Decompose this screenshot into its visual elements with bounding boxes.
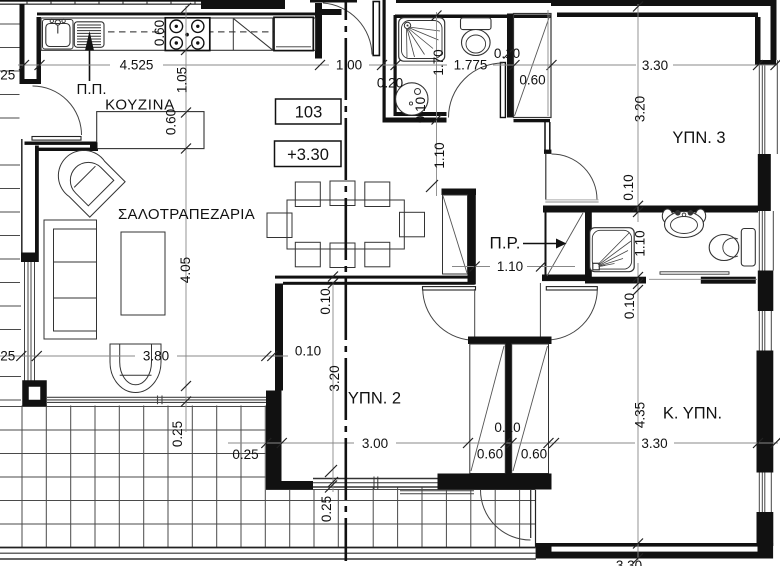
svg-text:0.60: 0.60 (521, 447, 547, 462)
svg-text:1.10: 1.10 (497, 259, 523, 274)
svg-text:1.05: 1.05 (175, 67, 190, 93)
svg-text:103: 103 (295, 104, 323, 122)
svg-text:0.60: 0.60 (152, 20, 167, 46)
svg-text:Π.Π.: Π.Π. (77, 81, 107, 98)
svg-text:+3.30: +3.30 (287, 146, 329, 164)
svg-text:1.10: 1.10 (633, 230, 648, 256)
svg-text:0.60: 0.60 (519, 73, 545, 88)
svg-text:3.00: 3.00 (362, 436, 388, 451)
svg-text:4.35: 4.35 (633, 402, 648, 428)
svg-text:4.05: 4.05 (178, 257, 193, 283)
svg-text:0.25: 0.25 (0, 349, 15, 364)
svg-text:0.25: 0.25 (170, 421, 185, 447)
svg-text:0.10: 0.10 (413, 97, 428, 123)
svg-text:ΥΠΝ. 3: ΥΠΝ. 3 (672, 129, 725, 147)
svg-text:4.525: 4.525 (120, 58, 154, 73)
svg-text:1.10: 1.10 (432, 142, 447, 168)
svg-text:0.10: 0.10 (622, 293, 637, 319)
svg-text:0.25: 0.25 (0, 68, 15, 83)
svg-text:0.10: 0.10 (494, 46, 520, 61)
svg-text:Κ. ΥΠΝ.: Κ. ΥΠΝ. (663, 405, 722, 423)
svg-text:3.30: 3.30 (616, 558, 642, 566)
svg-text:0.10: 0.10 (621, 174, 636, 200)
svg-text:3.20: 3.20 (327, 365, 342, 391)
svg-text:3.20: 3.20 (633, 96, 648, 122)
svg-text:0.10: 0.10 (318, 288, 333, 314)
svg-text:3.80: 3.80 (143, 349, 169, 364)
svg-text:1.775: 1.775 (454, 58, 488, 73)
svg-text:3.30: 3.30 (641, 436, 667, 451)
svg-text:ΚΟΥΖΙΝΑ: ΚΟΥΖΙΝΑ (105, 97, 175, 114)
svg-text:0.60: 0.60 (477, 447, 503, 462)
svg-text:0.25: 0.25 (319, 496, 334, 522)
svg-text:3.30: 3.30 (642, 58, 668, 73)
svg-text:0.10: 0.10 (295, 344, 321, 359)
svg-text:1.00: 1.00 (336, 58, 362, 73)
svg-text:0.25: 0.25 (232, 447, 258, 462)
svg-text:0.10: 0.10 (494, 420, 520, 435)
svg-text:0.20: 0.20 (377, 76, 403, 91)
svg-text:1.70: 1.70 (431, 49, 446, 75)
svg-text:ΥΠΝ. 2: ΥΠΝ. 2 (348, 390, 401, 408)
svg-text:ΣΑΛΟΤΡΑΠΕΖΑΡΙΑ: ΣΑΛΟΤΡΑΠΕΖΑΡΙΑ (118, 206, 255, 223)
svg-text:Π.Ρ.: Π.Ρ. (490, 234, 521, 253)
